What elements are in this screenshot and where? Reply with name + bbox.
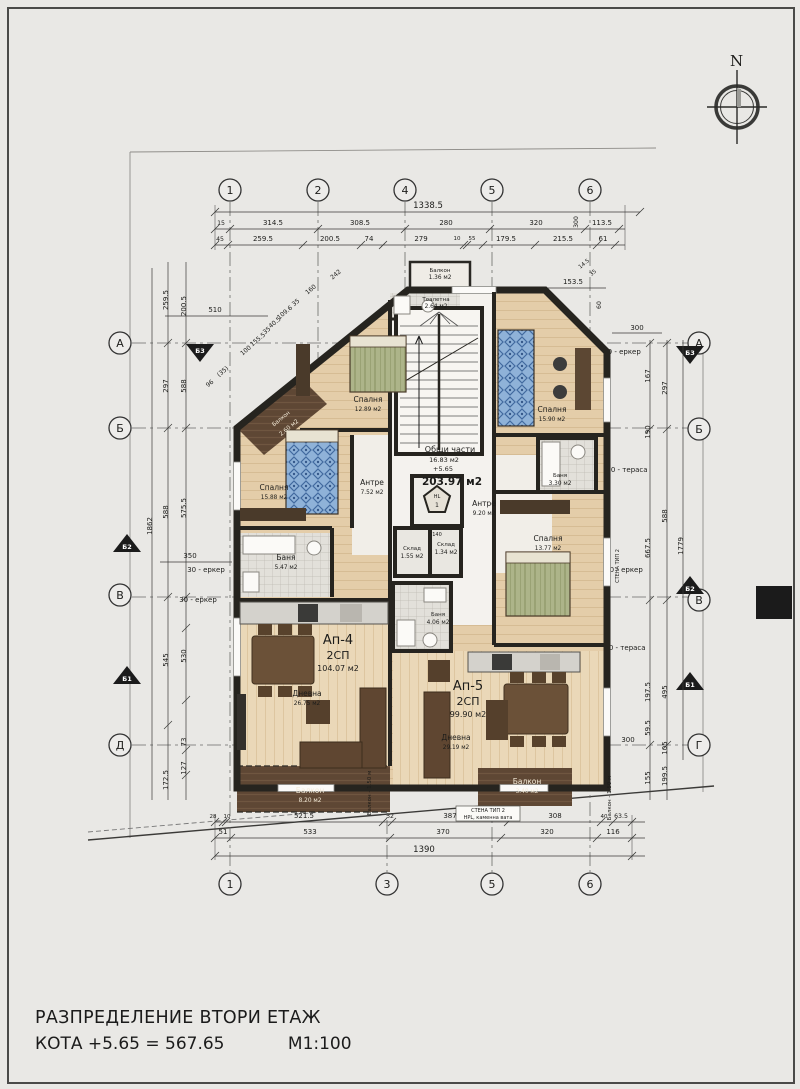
- dim: 172.5: [162, 770, 170, 790]
- room-name: Склад: [437, 542, 455, 548]
- axis-right-v: В: [695, 594, 703, 607]
- note-balkon-150-a: Балкон - 1.50 м: [367, 771, 373, 816]
- drawing-sheet: 1 2 4 5 6 1 3 5 6 А Б В Д А Б В Г Б3 Б2: [0, 0, 800, 1089]
- ap5-area: 99.90 м2: [450, 710, 487, 719]
- room-area: 4.06 м2: [427, 620, 450, 626]
- section-label-b2-right: Б2: [685, 585, 694, 593]
- tv-ap4: [237, 694, 246, 750]
- note-erker-left-2: 30 - еркер: [179, 596, 217, 604]
- dim: 314.5: [263, 219, 283, 227]
- dim: (35): [216, 365, 230, 379]
- dim: 259.5: [162, 290, 170, 310]
- dim: 116: [606, 828, 620, 836]
- dim: 200.5: [320, 235, 340, 243]
- dim: 370: [436, 828, 449, 836]
- ap4-id: Ап-4: [323, 633, 353, 648]
- common-total-area: 203.97 м2: [422, 476, 482, 488]
- drawing-title: РАЗПРЕДЕЛЕНИЕ ВТОРИ ЕТАЖ: [35, 1008, 352, 1028]
- dim: 495: [661, 685, 669, 698]
- axis-top-1: 1: [227, 184, 234, 197]
- ap5-id: Ап-5: [453, 679, 483, 694]
- ap4-type: 2СП: [327, 649, 350, 662]
- axis-bottom-5: 5: [489, 878, 496, 891]
- dim: 35: [589, 268, 599, 277]
- wall-type-title: СТЕНА ТИП 2: [471, 808, 505, 814]
- elevation-note: КОТА +5.65 = 567.65: [35, 1034, 225, 1054]
- dim: 15: [217, 220, 225, 227]
- scale-note: М1:100: [288, 1034, 352, 1054]
- section-label-b3-left: Б3: [195, 347, 204, 355]
- dim: 297: [162, 379, 170, 392]
- dim: 63.5: [614, 813, 628, 820]
- common-area: 16.83 м2: [429, 456, 459, 464]
- dim: 242: [329, 268, 343, 281]
- dim: 1779: [677, 537, 685, 555]
- dim: 155: [644, 771, 652, 784]
- dim: 588: [180, 379, 188, 392]
- armchair-ap5: [428, 660, 450, 682]
- dim: 510: [208, 306, 221, 314]
- section-label-b1-right: Б1: [685, 681, 695, 689]
- dim: 533: [303, 828, 316, 836]
- dim: 96: [205, 379, 216, 389]
- ap5-living-area: 29.19 м2: [443, 745, 470, 751]
- drawing-subtitle: КОТА +5.65 = 567.65 М1:100: [35, 1034, 352, 1054]
- section-label-b3-right: Б3: [685, 349, 694, 357]
- room-name: Антре: [472, 499, 496, 508]
- elevator-number: 1: [435, 502, 439, 509]
- dim: 197.5: [644, 682, 652, 702]
- dim: 190: [644, 425, 652, 438]
- dim: 320: [540, 828, 553, 836]
- room-area: 8.20 м2: [299, 798, 322, 804]
- room-name: Балкон: [430, 268, 451, 274]
- dim: 297: [661, 381, 669, 394]
- room-area: 1.55 м2: [401, 554, 424, 560]
- dim: 32: [386, 813, 394, 820]
- room-name: Антре: [360, 478, 384, 487]
- dim: 60: [596, 301, 603, 309]
- axis-left-a: А: [116, 337, 124, 350]
- desk-ne: [575, 348, 591, 410]
- dim: 575.5: [180, 498, 188, 518]
- dim: 35: [291, 298, 302, 308]
- dim: 127: [180, 761, 188, 774]
- room-area: 3.30 м2: [549, 481, 572, 487]
- dim: 105: [661, 741, 669, 754]
- dim: 14.5: [578, 258, 592, 271]
- dim: 215.5: [553, 235, 573, 243]
- room-area: 1.36 м2: [429, 275, 452, 281]
- staircase: [396, 308, 482, 454]
- dim: 545: [162, 653, 170, 666]
- dim: 155.5: [249, 331, 267, 348]
- axis-left-d: Д: [116, 739, 125, 752]
- room-name: Баня: [553, 473, 567, 479]
- axis-bottom-6: 6: [587, 878, 594, 891]
- dim: 530: [180, 649, 188, 662]
- wardrobe-w: [240, 508, 306, 521]
- room-name: Спалня: [534, 534, 563, 543]
- dim: 113.5: [592, 219, 612, 227]
- axis-left-b: Б: [116, 422, 124, 435]
- room-area: 15.90 м2: [539, 417, 566, 423]
- dimensions-top: 1338.5 15 314.5 308.5 280 320 113.5 300 …: [211, 201, 644, 250]
- dim: 300: [621, 736, 634, 744]
- dim: 308: [548, 812, 561, 820]
- ap4-living-area: 26.75 м2: [294, 701, 321, 707]
- ap5-living-name: Дневна: [441, 733, 470, 742]
- dim: 28: [210, 814, 217, 820]
- dining-table-ap4: [252, 636, 314, 684]
- dim: 199.5: [661, 766, 669, 786]
- north-label: N: [730, 52, 743, 70]
- bed-ne: [498, 330, 534, 426]
- note-erker-left-1: 30 - еркер: [187, 566, 225, 574]
- room-name: Тоалетна: [421, 297, 449, 303]
- room-area: 7.52 м2: [361, 490, 384, 496]
- dim: 160: [304, 283, 318, 296]
- wardrobe-e: [500, 500, 570, 514]
- axis-top-4: 4: [402, 184, 409, 197]
- dim-top-total: 1338.5: [413, 201, 443, 211]
- room-name: Спалня: [260, 483, 289, 492]
- note-balkon-150-b: Балкон - 1.50 м: [607, 776, 613, 821]
- dim: 167: [644, 369, 652, 382]
- dim: 350: [183, 552, 196, 560]
- dim: 588: [661, 509, 669, 522]
- room-name: Склад: [403, 546, 421, 552]
- dim: 308.5: [350, 219, 370, 227]
- title-block: РАЗПРЕДЕЛЕНИЕ ВТОРИ ЕТАЖ КОТА +5.65 = 56…: [35, 1008, 352, 1054]
- dim: 45: [216, 236, 224, 243]
- room-name: Балкон: [513, 777, 542, 786]
- dim: 588: [162, 505, 170, 518]
- axis-bottom-3: 3: [384, 878, 391, 891]
- dim: 280: [439, 219, 452, 227]
- note-erker-right-2: 30 - еркер: [605, 566, 643, 574]
- dim: 73: [180, 738, 188, 747]
- dim: 153.5: [563, 278, 583, 286]
- wardrobe-nw: [296, 344, 310, 396]
- room-name: Спалня: [538, 405, 567, 414]
- dim: 10: [224, 814, 231, 820]
- room-area: 12.89 м2: [355, 407, 382, 413]
- room-name: Баня: [276, 553, 295, 562]
- wall-type-side: СТЕНА ТИП 2: [615, 549, 621, 583]
- common-level: +5.65: [433, 465, 453, 473]
- dim: 320: [529, 219, 542, 227]
- ap4-area: 104.07 м2: [317, 664, 359, 673]
- dim: 55: [469, 236, 476, 242]
- floor-plan-drawing: 1 2 4 5 6 1 3 5 6 А Б В Д А Б В Г Б3 Б2: [0, 0, 800, 1089]
- dim: 387: [443, 812, 456, 820]
- dim: 259.5: [253, 235, 273, 243]
- dim-bottom-total: 1390: [413, 845, 435, 855]
- room-area: 5.47 м2: [275, 565, 298, 571]
- room-area: 1.34 м2: [435, 550, 458, 556]
- dim: 74: [365, 235, 374, 243]
- room-name: Балкон: [296, 786, 325, 795]
- dim: 200.5: [180, 296, 188, 316]
- dim: 521.5: [294, 812, 314, 820]
- section-label-b2-left: Б2: [122, 543, 131, 551]
- dimensions-bottom: 28 10 521.5 32 387 308 40 63.5 51 533 37…: [210, 812, 646, 860]
- dim: 61: [599, 235, 608, 243]
- dim: 300: [630, 324, 643, 332]
- axis-right-b: Б: [695, 423, 703, 436]
- dim: 59.5: [644, 720, 652, 736]
- bed-w: [286, 430, 338, 514]
- neighbor-block-mark: [756, 586, 792, 619]
- kitchen-ap5: [468, 652, 580, 672]
- dim: 51: [219, 828, 228, 836]
- axis-right-g: Г: [696, 739, 703, 752]
- axis-top-2: 2: [315, 184, 322, 197]
- note-terasa-right-1: 90 - тераса: [606, 466, 647, 474]
- room-area: 13.77 м2: [535, 546, 562, 552]
- room-name: Спалня: [354, 395, 383, 404]
- ap5-type: 2СП: [457, 695, 480, 708]
- elevator-label: HL: [434, 494, 441, 500]
- room-area: 2.64 м2: [425, 304, 448, 310]
- north-arrow: N: [707, 52, 767, 144]
- room-area: 9.20 м2: [473, 511, 496, 517]
- axis-bottom-1: 1: [227, 878, 234, 891]
- dim: 279: [414, 235, 427, 243]
- wall-type-sub: HPL, каменна вата: [464, 815, 513, 821]
- sofa-ap4: [360, 688, 386, 768]
- room-name: Баня: [431, 612, 445, 618]
- axis-top-6: 6: [587, 184, 594, 197]
- dim: 10: [454, 236, 461, 242]
- common-name: Общи части: [425, 445, 475, 454]
- axis-top-5: 5: [489, 184, 496, 197]
- dim: 667.5: [644, 538, 652, 558]
- dim: 179.5: [496, 235, 516, 243]
- elevator-dim: 140: [432, 532, 442, 538]
- dim-vertical: 300: [573, 216, 580, 228]
- section-label-b1-left: Б1: [122, 675, 132, 683]
- axis-left-v: В: [116, 589, 124, 602]
- room-area: 3.40 м2: [516, 789, 539, 795]
- note-terasa-right-2: 90 - тераса: [604, 644, 645, 652]
- sofa-se: [486, 700, 508, 740]
- ap4-living-name: Дневна: [292, 689, 321, 698]
- dim: 1862: [146, 517, 154, 535]
- room-area: 15.88 м2: [261, 495, 288, 501]
- dining-table-ap5: [504, 684, 568, 734]
